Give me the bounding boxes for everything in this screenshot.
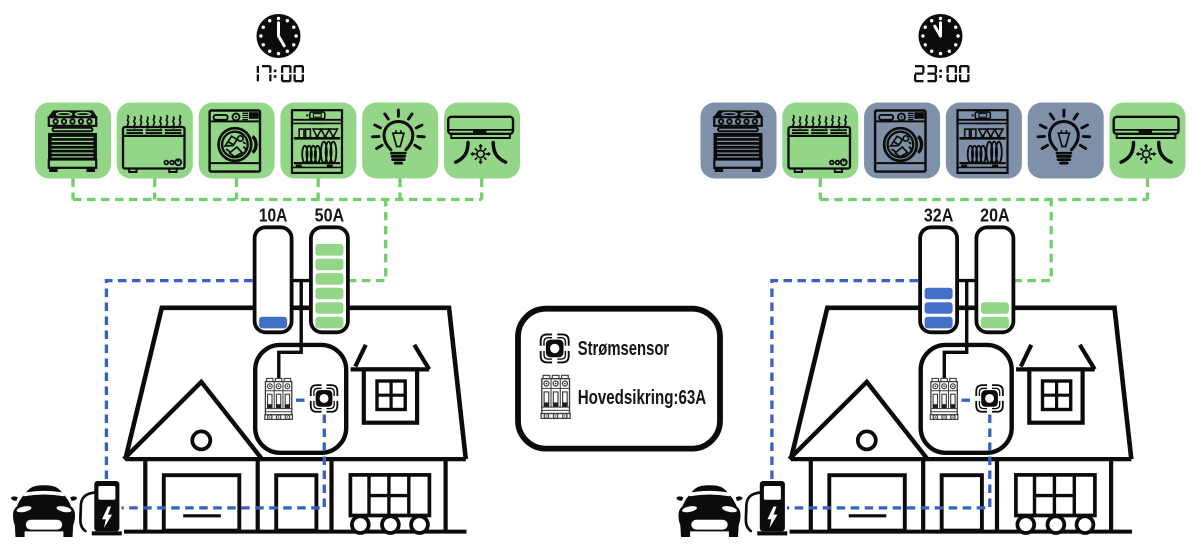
svg-text:32A: 32A — [924, 205, 954, 226]
svg-text:Strømsensor: Strømsensor — [578, 338, 670, 360]
svg-text:50A: 50A — [315, 205, 345, 226]
svg-text:20A: 20A — [980, 205, 1010, 226]
svg-text:Hovedsikring:63A: Hovedsikring:63A — [578, 387, 707, 409]
svg-text:10A: 10A — [259, 205, 288, 226]
